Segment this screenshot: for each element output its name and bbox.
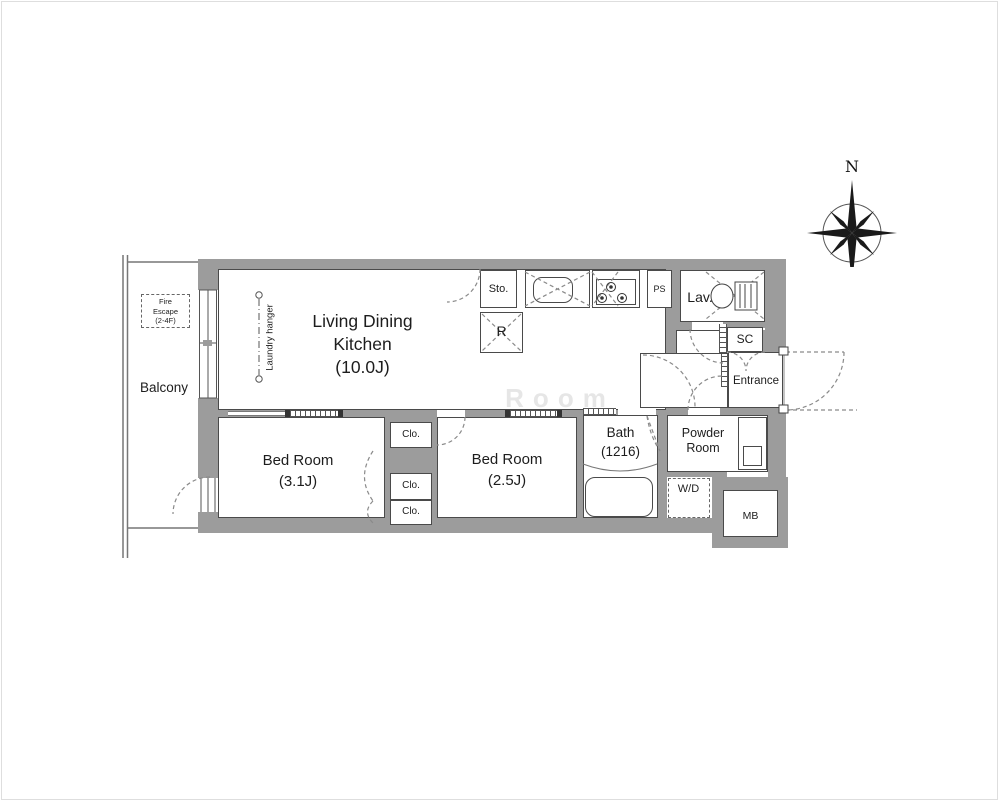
bedroom31-balcony-door-arc [173, 477, 210, 514]
compass-points [807, 180, 897, 267]
fire-escape-line1: Fire [159, 297, 172, 306]
closet1-label: Clo. [390, 429, 432, 440]
powder-line1: Powder [682, 426, 724, 440]
balcony-label: Balcony [130, 380, 198, 395]
bathtub-rim-curve [583, 464, 657, 471]
ldk-label: Living Dining Kitchen (10.0J) [240, 310, 485, 379]
bedroom31-label: Bed Room (3.1J) [228, 450, 368, 492]
bedroom25-line2: (2.5J) [488, 472, 526, 489]
floor-plan: N Room Balcony Fire Escape (2-4F) Laundr… [0, 0, 999, 801]
window-frames [199, 290, 217, 512]
storage-door-arc [447, 269, 480, 302]
entrance-door-arc [786, 352, 844, 410]
bedroom31-line1: Bed Room [263, 452, 334, 469]
washer-dryer-label: W/D [667, 483, 710, 495]
closet2-label: Clo. [390, 480, 432, 491]
fire-escape-line2: Escape [153, 307, 178, 316]
meter-box-label: MB [723, 510, 778, 522]
pipe-space-label: PS [647, 284, 672, 294]
entrance-label: Entrance [726, 375, 786, 387]
shoe-closet-label: SC [727, 332, 763, 346]
powder-room-label: Powder Room [665, 426, 741, 456]
window-transom-tick [203, 340, 212, 346]
bedroom25-line1: Bed Room [472, 451, 543, 468]
bath-line2: (1216) [601, 444, 640, 459]
shoe-closet-door-arcs [727, 352, 765, 371]
refrigerator-label: R [480, 323, 523, 339]
bedroom25-label: Bed Room (2.5J) [437, 449, 577, 491]
lav-door-arc [690, 329, 723, 363]
overhead-cabinet-cross-sink [525, 272, 590, 306]
ldk-line3: (10.0J) [335, 357, 389, 377]
compass-north-label: N [845, 157, 859, 176]
closet3-label: Clo. [390, 506, 432, 517]
bath-line1: Bath [607, 425, 635, 440]
storage-label: Sto. [480, 283, 517, 295]
fire-escape-line3: (2-4F) [155, 316, 175, 325]
ldk-line1: Living Dining [312, 311, 412, 331]
compass-rose: N [805, 152, 905, 267]
lavatory-label: Lav. [681, 289, 719, 305]
ldk-line2: Kitchen [333, 334, 391, 354]
bedroom25-door-arc [437, 417, 465, 445]
powder-line2: Room [686, 441, 719, 455]
bath-label: Bath (1216) [583, 423, 658, 461]
watermark: Room [420, 383, 700, 414]
bedroom31-line2: (3.1J) [279, 473, 317, 490]
fire-escape-label: Fire Escape (2-4F) [141, 297, 190, 326]
